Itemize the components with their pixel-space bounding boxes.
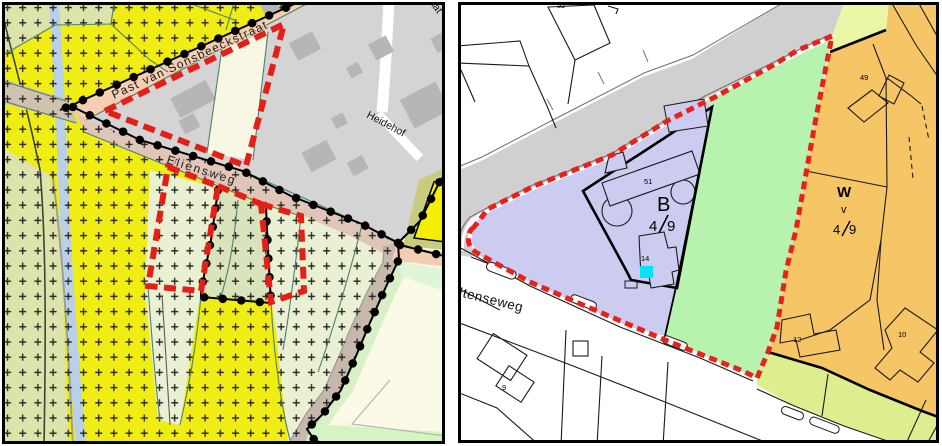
svg-text:W: W xyxy=(837,184,852,201)
svg-text:9: 9 xyxy=(849,222,856,237)
svg-text:12: 12 xyxy=(793,335,801,344)
svg-text:4: 4 xyxy=(649,218,657,235)
svg-text:9: 9 xyxy=(502,383,506,392)
svg-text:14: 14 xyxy=(641,254,649,263)
svg-text:10: 10 xyxy=(898,330,906,339)
svg-text:4: 4 xyxy=(833,222,840,237)
svg-text:49: 49 xyxy=(860,73,868,82)
svg-text:51: 51 xyxy=(644,177,652,186)
svg-text:B: B xyxy=(657,194,670,216)
svg-text:9: 9 xyxy=(667,218,675,235)
svg-text:v: v xyxy=(841,204,847,216)
